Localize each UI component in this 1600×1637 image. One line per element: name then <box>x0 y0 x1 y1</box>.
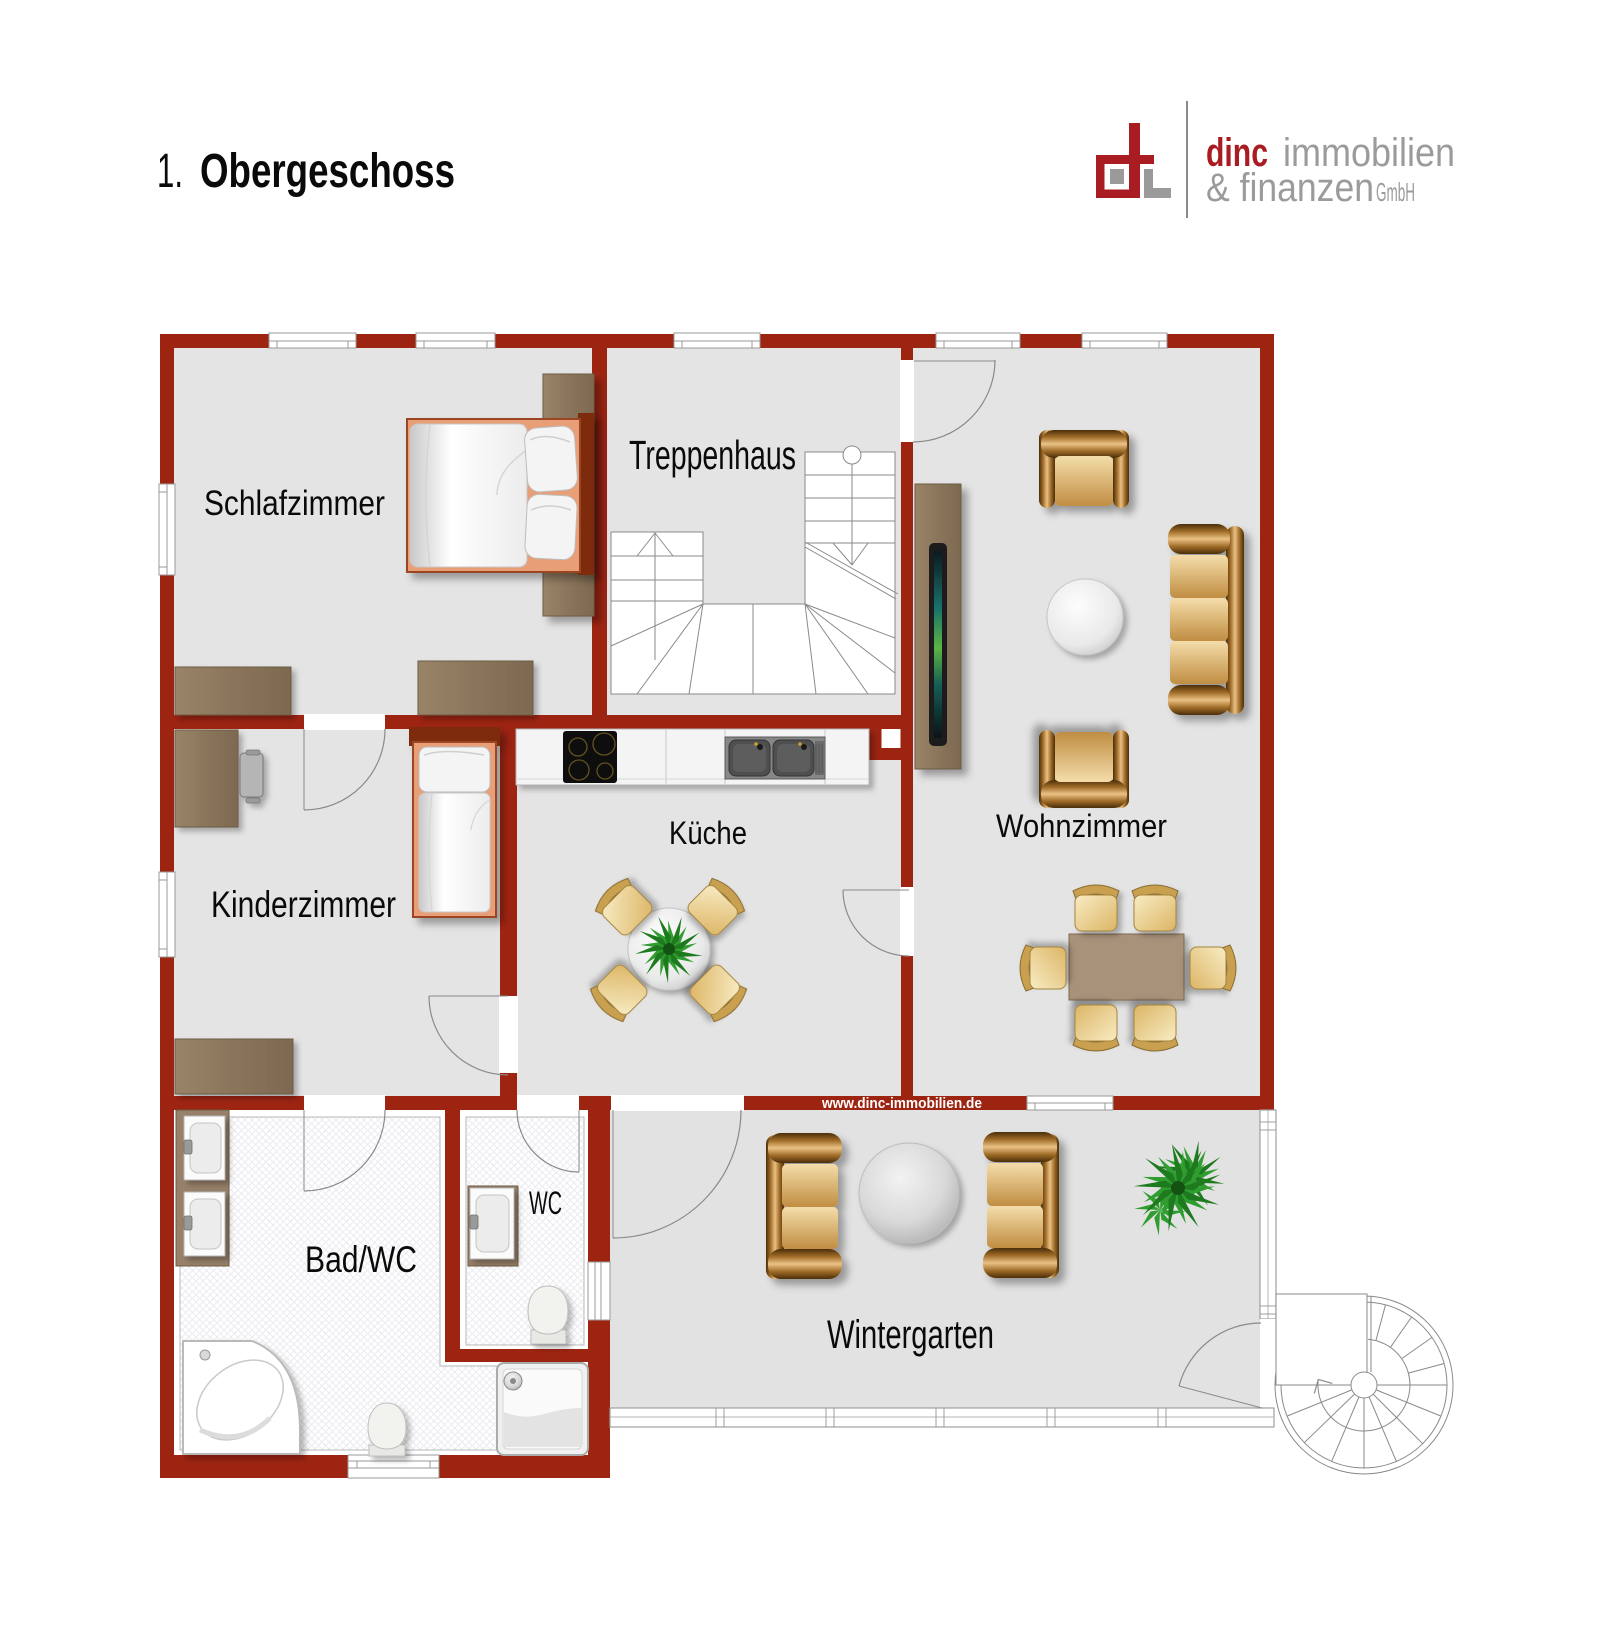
svg-text:WC: WC <box>529 1185 562 1221</box>
svg-text:Bad/WC: Bad/WC <box>305 1239 417 1280</box>
svg-text:Wohnzimmer: Wohnzimmer <box>996 808 1167 844</box>
svg-text:Schlafzimmer: Schlafzimmer <box>204 484 385 523</box>
svg-text:www.dinc-immobilien.de: www.dinc-immobilien.de <box>821 1095 982 1112</box>
svg-text:& finanzen: & finanzen <box>1206 166 1374 210</box>
svg-text:Obergeschoss: Obergeschoss <box>200 145 455 198</box>
svg-text:Küche: Küche <box>669 815 747 851</box>
svg-text:Treppenhaus: Treppenhaus <box>629 432 796 478</box>
svg-text:Wintergarten: Wintergarten <box>827 1313 994 1357</box>
svg-text:Kinderzimmer: Kinderzimmer <box>211 884 396 925</box>
svg-text:GmbH: GmbH <box>1376 177 1415 207</box>
svg-text:1.: 1. <box>157 145 183 198</box>
